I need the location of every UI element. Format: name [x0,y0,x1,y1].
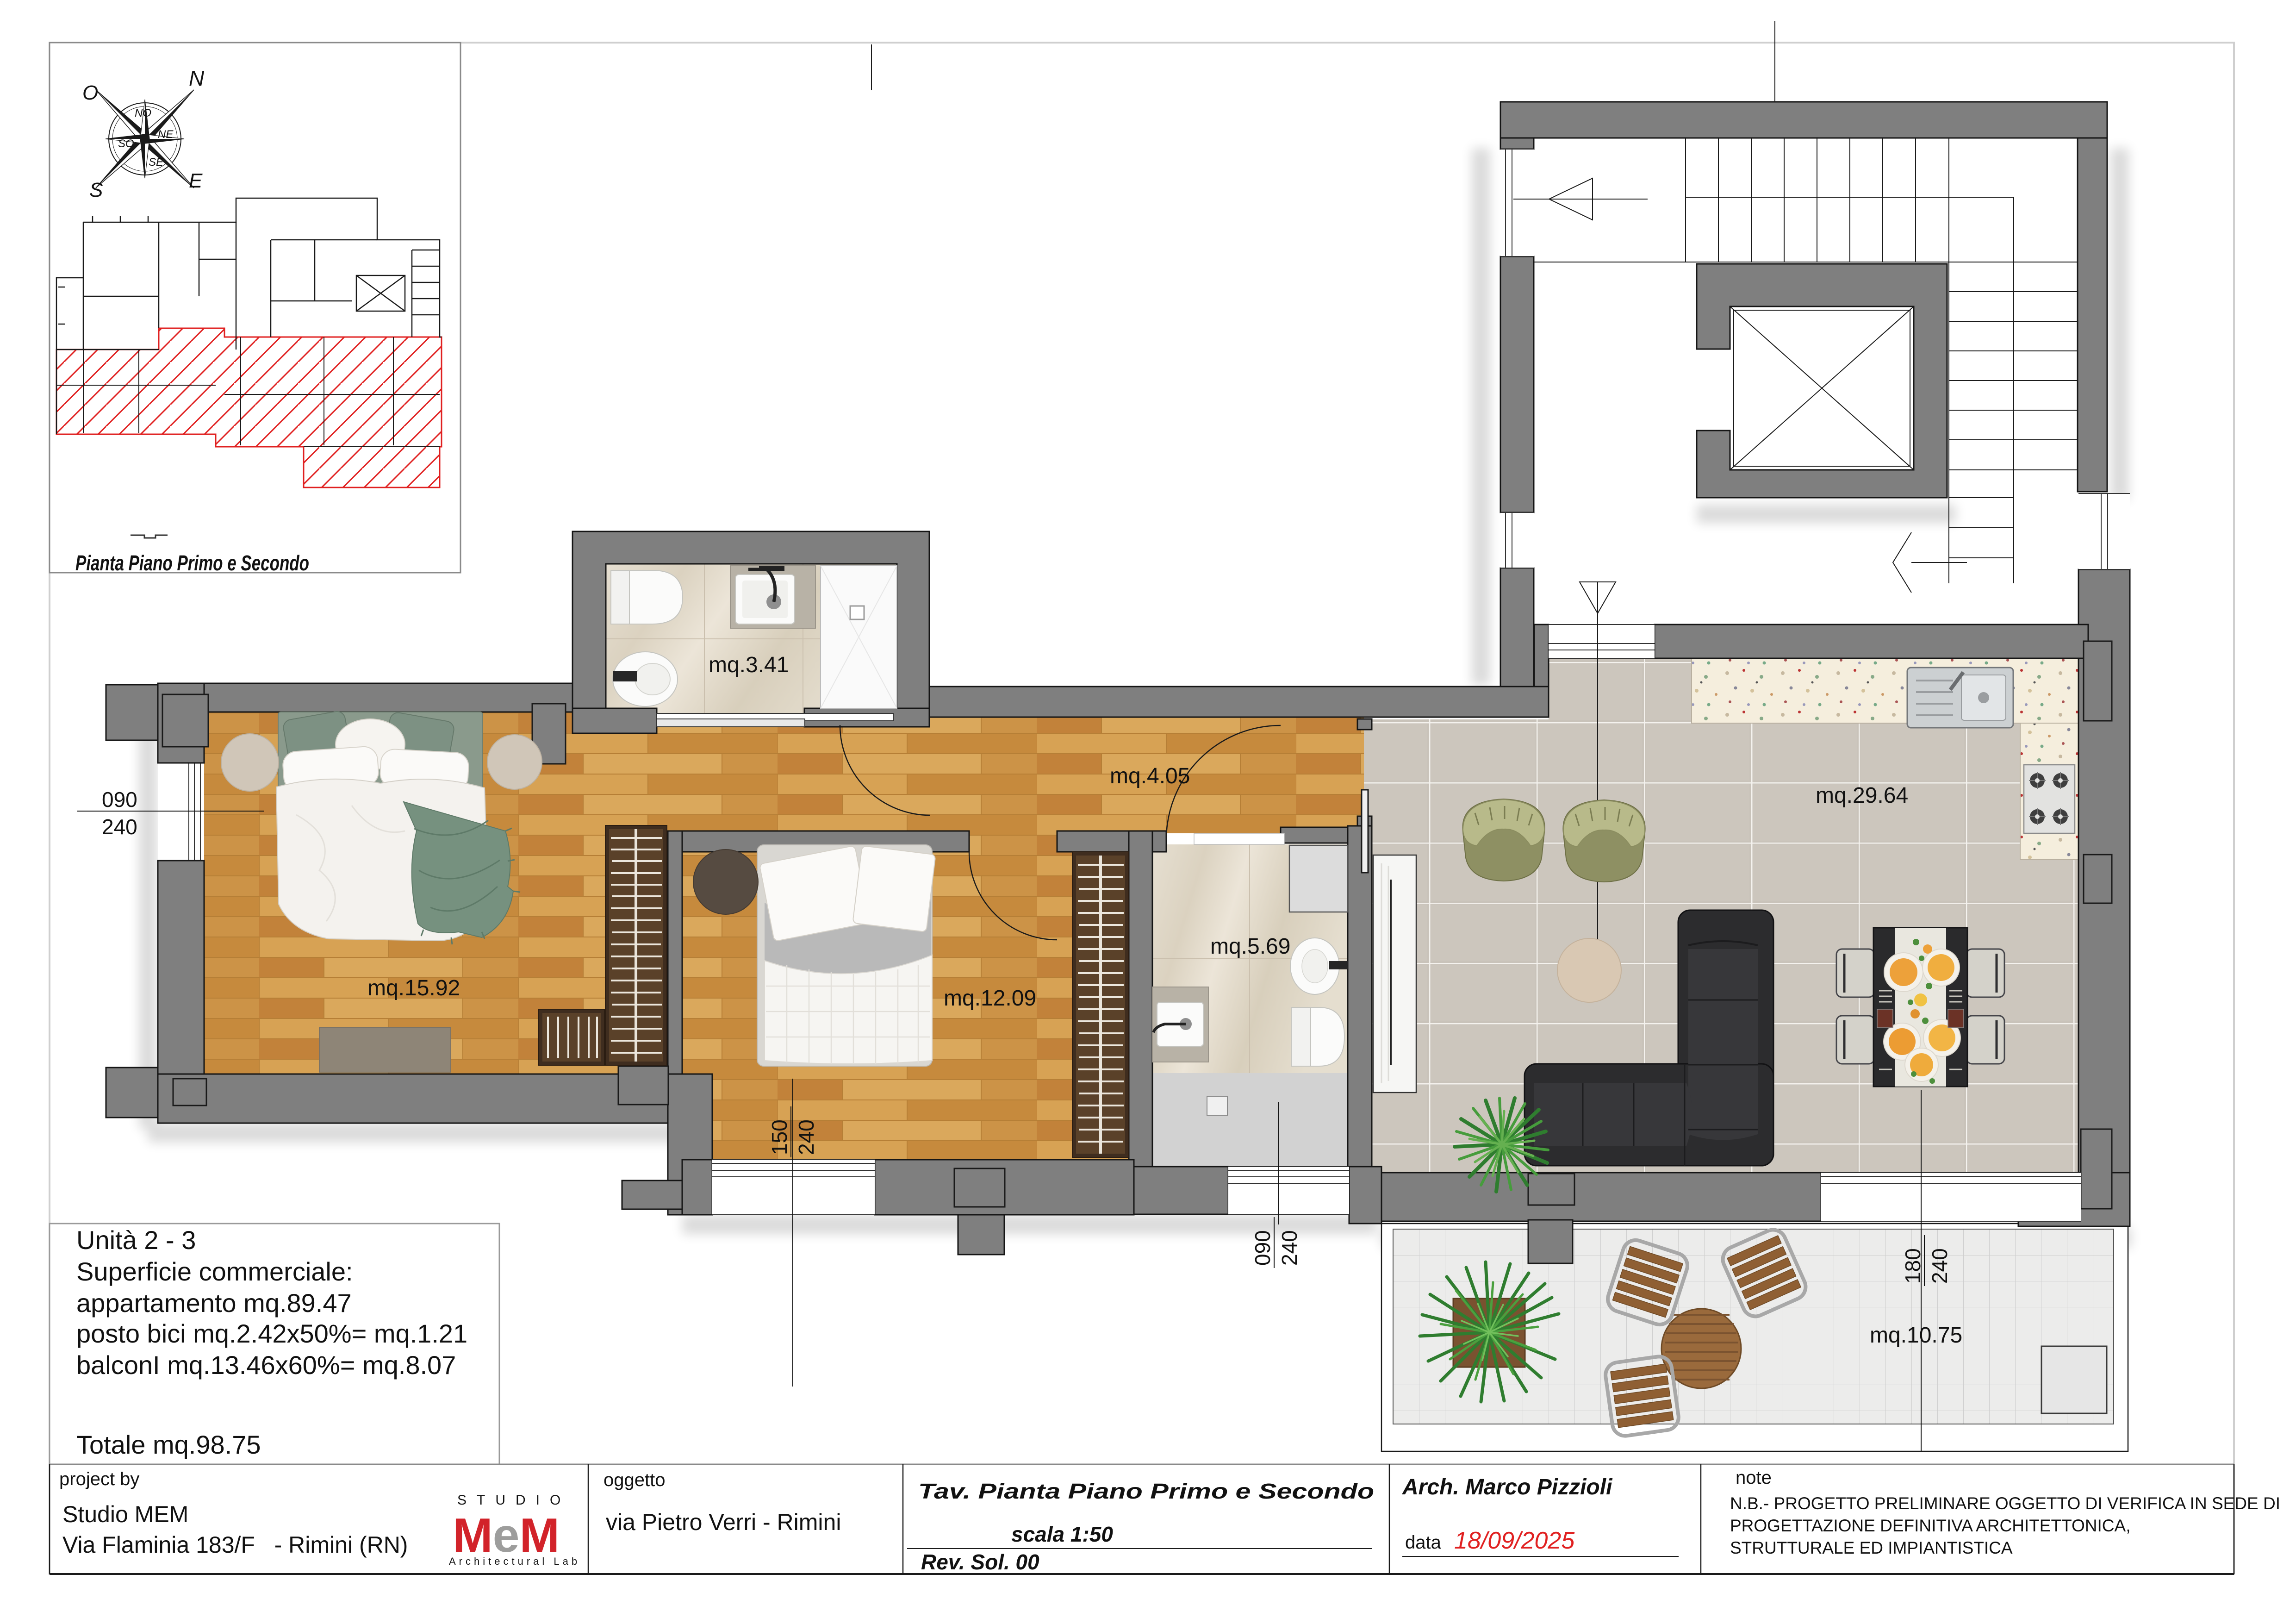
svg-text:posto bici mq.2.42x50%= mq.1.2: posto bici mq.2.42x50%= mq.1.21 [76,1319,467,1348]
svg-text:NO: NO [135,107,151,119]
svg-text:mq.10.75: mq.10.75 [1870,1323,1962,1348]
svg-text:Totale mq.98.75: Totale mq.98.75 [76,1430,261,1459]
svg-text:balconI mq.13.46x60%= mq.8.07: balconI mq.13.46x60%= mq.8.07 [76,1350,456,1380]
svg-text:240: 240 [1928,1248,1952,1284]
svg-text:Rev. Sol. 00: Rev. Sol. 00 [921,1550,1039,1574]
svg-text:Unità 2 - 3: Unità 2 - 3 [76,1225,196,1255]
svg-text:mq.4.05: mq.4.05 [1110,764,1190,788]
svg-text:Tav. Pianta Piano Primo e Sec: Tav. Pianta Piano Primo e Secondo [918,1479,1374,1503]
svg-text:O: O [82,81,98,104]
svg-text:090: 090 [1251,1230,1275,1266]
svg-text:note: note [1736,1468,1772,1488]
svg-text:appartamento mq.89.47: appartamento mq.89.47 [76,1288,352,1318]
svg-text:mq.5.69: mq.5.69 [1210,934,1290,959]
svg-text:Pianta Piano Primo e Secondo: Pianta Piano Primo e Secondo [75,551,309,575]
svg-text:Arch. Marco Pizzioli: Arch. Marco Pizzioli [1402,1475,1613,1499]
svg-text:via Pietro Verri - Rimini: via Pietro Verri - Rimini [606,1509,841,1535]
svg-text:SE: SE [149,156,164,169]
svg-text:S: S [89,179,103,201]
svg-text:Via Flaminia 183/F - Rimini: Via Flaminia 183/F - Rimini (RN) [62,1532,408,1558]
svg-text:240: 240 [1277,1230,1301,1266]
svg-text:090: 090 [102,787,137,812]
svg-text:N.B.- PROGETTO PRELIMINARE OGG: N.B.- PROGETTO PRELIMINARE OGGETTO DI VE… [1730,1494,2280,1513]
svg-text:project by: project by [59,1469,139,1489]
svg-text:oggetto: oggetto [604,1470,665,1490]
svg-text:Studio MEM: Studio MEM [62,1501,188,1527]
svg-text:mq.15.92: mq.15.92 [367,976,460,1000]
svg-text:NE: NE [158,128,174,141]
svg-text:Superficie commerciale:: Superficie commerciale: [76,1257,353,1286]
svg-text:E: E [189,169,203,192]
svg-text:SO: SO [118,137,134,150]
svg-text:STRUTTURALE ED IMPIANTISTICA: STRUTTURALE ED IMPIANTISTICA [1730,1538,2013,1557]
svg-text:Architectural Lab: Architectural Lab [449,1555,580,1567]
svg-text:N: N [189,66,205,90]
svg-text:18/09/2025: 18/09/2025 [1454,1527,1575,1554]
svg-text:STUDIO: STUDIO [457,1493,571,1508]
svg-text:PROGETTAZIONE DEFINITIVA ARCHI: PROGETTAZIONE DEFINITIVA ARCHITETTONICA, [1730,1516,2130,1535]
svg-text:mq.3.41: mq.3.41 [709,653,789,677]
svg-text:150: 150 [767,1119,791,1155]
svg-text:mq.12.09: mq.12.09 [944,986,1036,1011]
svg-text:240: 240 [794,1119,818,1155]
svg-text:MeM: MeM [453,1509,560,1562]
svg-text:mq.29.64: mq.29.64 [1816,783,1908,808]
svg-text:240: 240 [102,815,137,839]
svg-text:data: data [1405,1532,1442,1553]
svg-text:scala 1:50: scala 1:50 [1011,1522,1113,1546]
